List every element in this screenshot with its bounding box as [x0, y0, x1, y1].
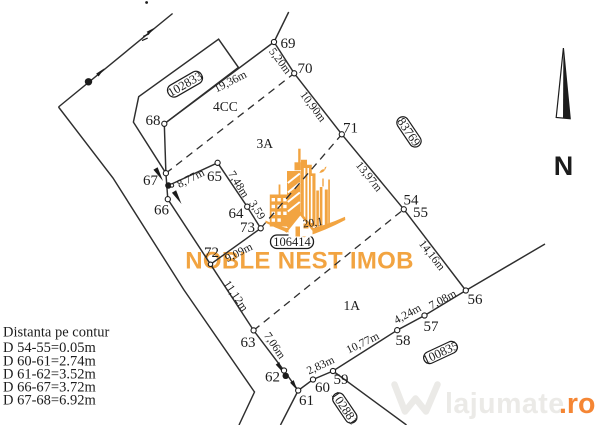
- svg-text:60: 60: [315, 380, 330, 396]
- svg-text:63: 63: [241, 335, 256, 351]
- svg-text:71: 71: [343, 121, 358, 137]
- svg-text:10,90m: 10,90m: [297, 89, 328, 124]
- svg-text:7,08m: 7,08m: [427, 288, 458, 312]
- svg-text:72: 72: [204, 245, 219, 261]
- svg-text:83769: 83769: [394, 115, 423, 149]
- svg-text:70: 70: [298, 61, 313, 77]
- svg-text:N: N: [554, 151, 574, 181]
- svg-text:3A: 3A: [257, 136, 274, 151]
- svg-text:106414: 106414: [273, 235, 311, 249]
- svg-text:65: 65: [207, 169, 222, 185]
- svg-text:68: 68: [146, 113, 161, 129]
- svg-text:69: 69: [281, 36, 296, 52]
- svg-text:56: 56: [468, 292, 484, 308]
- svg-text:62: 62: [265, 370, 280, 386]
- svg-text:58: 58: [396, 333, 411, 349]
- svg-text:11,12m: 11,12m: [221, 279, 250, 314]
- svg-text:.ro: .ro: [559, 388, 595, 420]
- svg-text:73: 73: [240, 220, 255, 236]
- svg-text:Distanta pe contur: Distanta pe contur: [3, 325, 109, 341]
- svg-text:61: 61: [299, 393, 314, 409]
- svg-text:lajumate: lajumate: [445, 388, 565, 420]
- svg-text:66: 66: [154, 203, 170, 219]
- svg-text:59: 59: [334, 372, 349, 388]
- svg-text:NOBLE NEST IMOB: NOBLE NEST IMOB: [185, 248, 414, 275]
- svg-text:102881: 102881: [328, 389, 361, 425]
- svg-text:55: 55: [413, 205, 428, 221]
- svg-text:1A: 1A: [344, 298, 361, 313]
- svg-text:13,97m: 13,97m: [353, 160, 384, 195]
- svg-text:4,24m: 4,24m: [392, 302, 423, 327]
- svg-text:D 67-68=6.92m: D 67-68=6.92m: [3, 393, 96, 409]
- svg-text:4CC: 4CC: [213, 99, 238, 114]
- svg-text:7,48m: 7,48m: [225, 169, 251, 200]
- svg-text:14,16m: 14,16m: [416, 238, 447, 273]
- svg-text:57: 57: [424, 319, 440, 335]
- svg-text:8,77m: 8,77m: [175, 167, 206, 191]
- svg-text:67: 67: [143, 173, 159, 189]
- svg-text:100835: 100835: [421, 338, 461, 367]
